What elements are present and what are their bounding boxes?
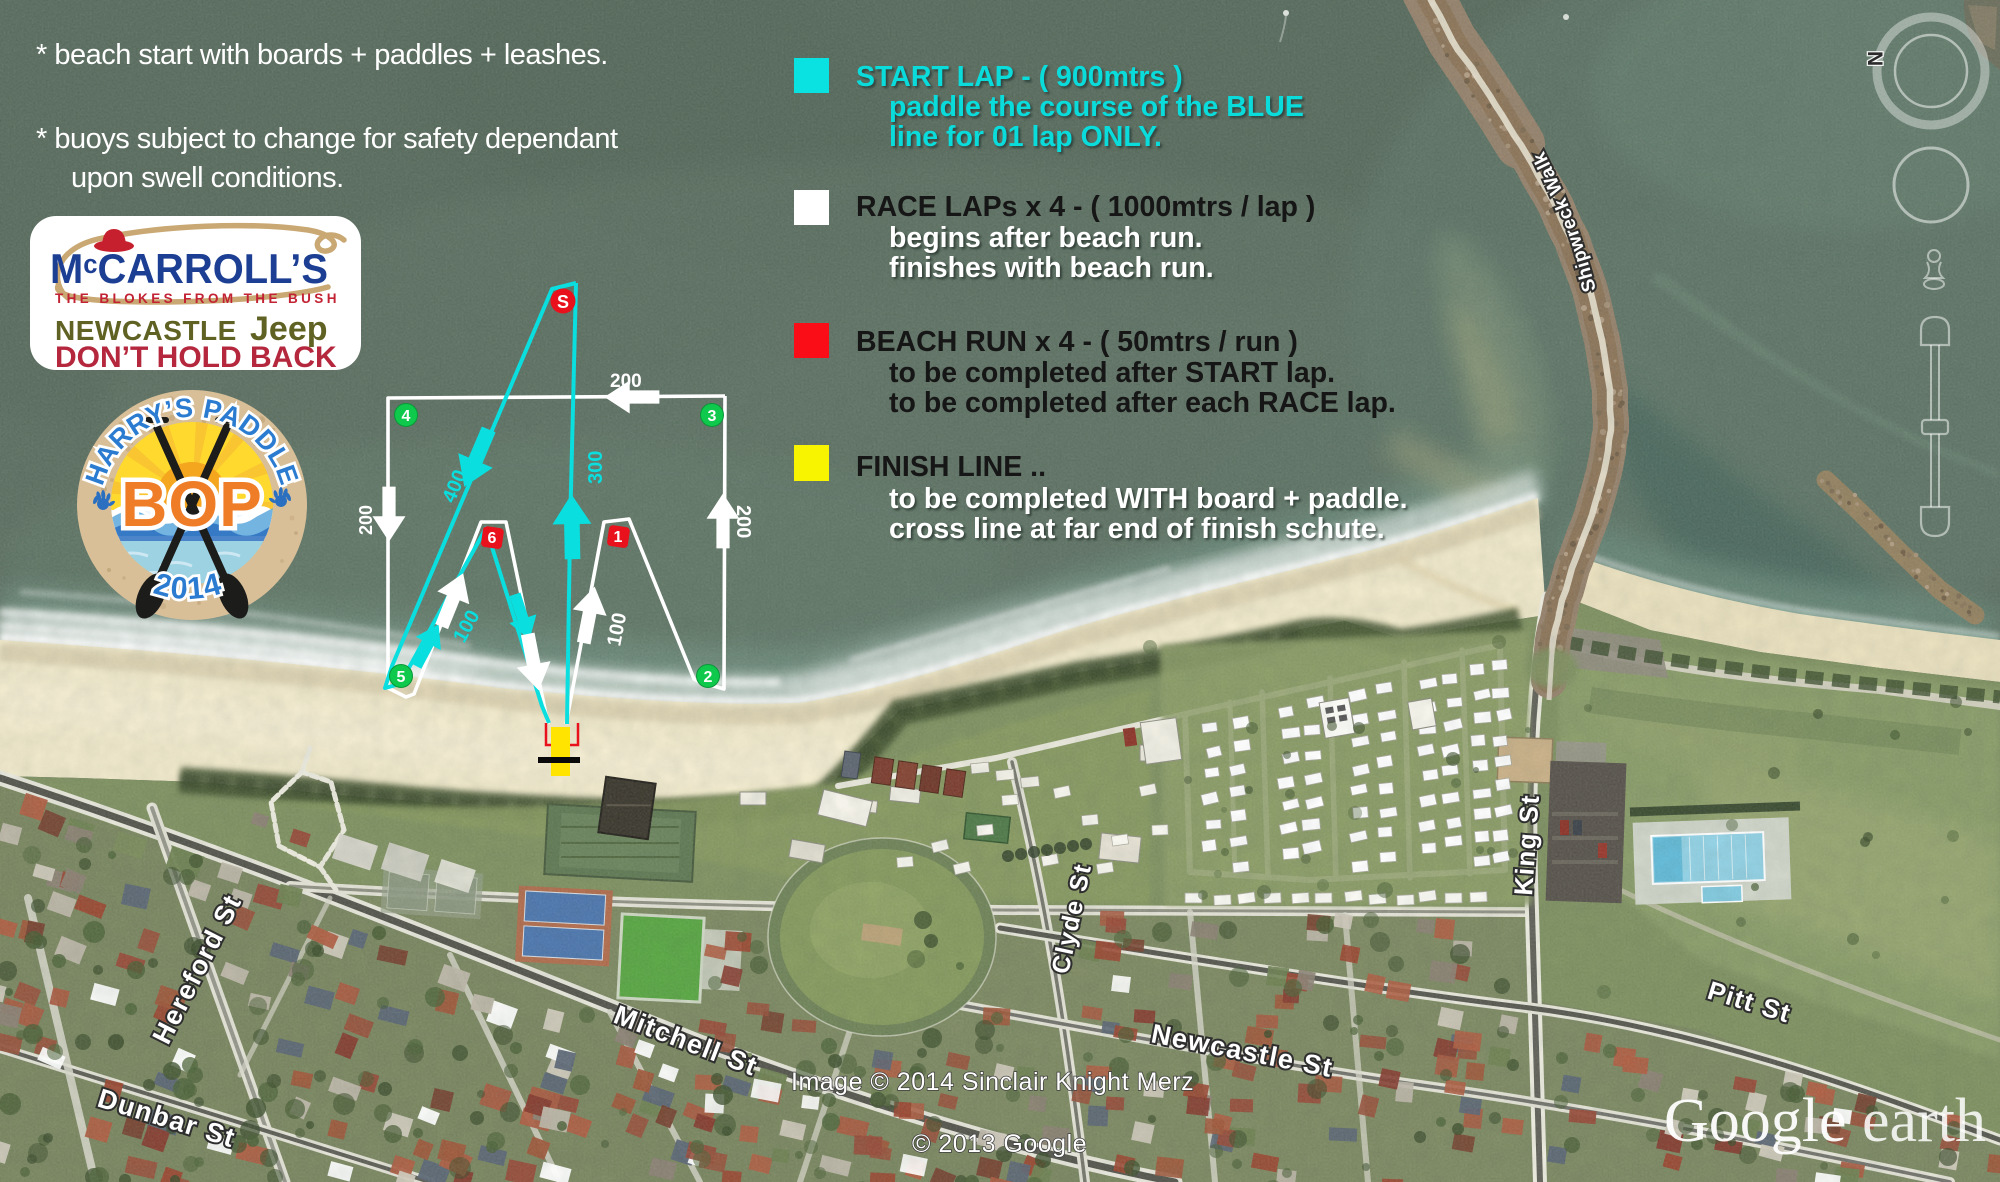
svg-text:begins after beach run.: begins after beach run. [889, 222, 1203, 254]
svg-text:BOP: BOP [121, 468, 263, 540]
svg-text:4: 4 [402, 408, 411, 425]
svg-text:3: 3 [708, 408, 717, 425]
svg-text:200: 200 [610, 371, 642, 392]
svg-text:5: 5 [397, 669, 406, 686]
svg-text:DON’T HOLD BACK: DON’T HOLD BACK [55, 341, 337, 374]
svg-text:* beach start with boards + pa: * beach start with boards + paddles + le… [36, 39, 608, 71]
svg-text:to be completed after each RAC: to be completed after each RACE lap. [889, 387, 1396, 419]
svg-text:Image © 2014 Sinclair Knight M: Image © 2014 Sinclair Knight Merz [791, 1068, 1194, 1096]
svg-text:line for 01 lap ONLY.: line for 01 lap ONLY. [889, 121, 1162, 153]
svg-text:finishes with beach run.: finishes with beach run. [889, 252, 1214, 284]
svg-text:FINISH LINE ..: FINISH LINE .. [856, 451, 1046, 483]
svg-text:1: 1 [614, 529, 623, 546]
svg-text:200: 200 [732, 505, 754, 538]
svg-text:6: 6 [488, 530, 497, 547]
svg-text:to be completed after START la: to be completed after START lap. [889, 357, 1335, 389]
svg-text:Google earth: Google earth [1664, 1087, 1986, 1155]
svg-text:© 2013 Google: © 2013 Google [912, 1130, 1087, 1158]
svg-text:to be completed WITH board + p: to be completed WITH board + paddle. [889, 483, 1408, 515]
svg-text:RACE LAPs x 4 - ( 1000mtrs / l: RACE LAPs x 4 - ( 1000mtrs / lap ) [856, 191, 1315, 223]
svg-text:2: 2 [704, 669, 713, 686]
svg-text:200: 200 [356, 505, 376, 535]
svg-text:* buoys subject to change for: * buoys subject to change for safety dep… [36, 123, 618, 155]
svg-text:S: S [557, 292, 569, 312]
svg-text:upon swell conditions.: upon swell conditions. [71, 162, 344, 194]
svg-text:THE BLOKES FROM THE BUSH: THE BLOKES FROM THE BUSH [55, 291, 340, 306]
svg-text:paddle the course of the BLUE: paddle the course of the BLUE [889, 91, 1304, 123]
svg-text:cross line at far end of finis: cross line at far end of finish schute. [889, 513, 1385, 545]
svg-text:BEACH RUN x 4 - ( 50mtrs / run: BEACH RUN x 4 - ( 50mtrs / run ) [856, 326, 1298, 358]
svg-text:300: 300 [585, 451, 607, 484]
svg-text:START LAP - ( 900mtrs ): START LAP - ( 900mtrs ) [856, 61, 1183, 93]
svg-text:N: N [1863, 51, 1886, 66]
